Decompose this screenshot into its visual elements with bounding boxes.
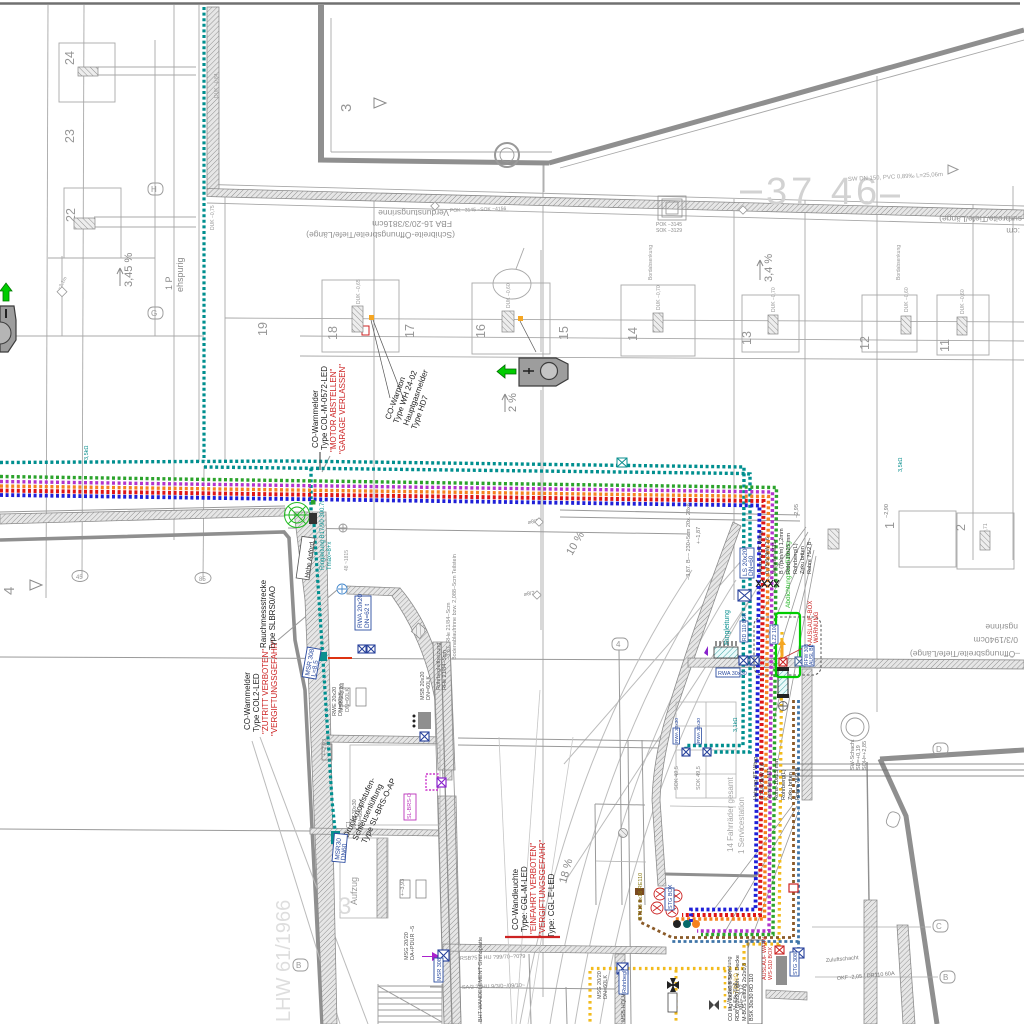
svg-text:Type COL-M-0572-LED: Type COL-M-0572-LED — [320, 366, 329, 450]
svg-text:Rohre 75/2 B: Rohre 75/2 B — [807, 541, 813, 574]
svg-text:DN=60LK: DN=60LK — [426, 676, 432, 700]
svg-text:Zirku brtten: Zirku brtten — [788, 772, 794, 800]
svg-text:BHT WANDELEMENT Grundplatte: BHT WANDELEMENT Grundplatte — [478, 937, 484, 1022]
svg-text:3,5kΩ: 3,5kΩ — [898, 457, 904, 472]
svg-text:"GARAGE VERLASSEN": "GARAGE VERLASSEN" — [338, 364, 347, 454]
svg-text:DN=60LK: DN=60LK — [603, 975, 609, 999]
svg-text:2: 2 — [954, 524, 968, 531]
svg-text:DUK −0,60: DUK −0,60 — [960, 289, 966, 314]
svg-text:DUK −0,60: DUK −0,60 — [904, 287, 910, 312]
svg-text:WARNUNG: WARNUNG — [814, 611, 820, 643]
svg-text:Rohrbwrg(L): Rohrbwrg(L) — [781, 769, 787, 800]
svg-text:+−3,93: +−3,93 — [400, 879, 406, 896]
svg-text:RWA 30x30: RWA 30x30 — [674, 718, 680, 743]
svg-text:H: H — [151, 185, 157, 194]
svg-text:3,45 %: 3,45 % — [123, 253, 135, 287]
svg-text:48 ~1815: 48 ~1815 — [344, 550, 350, 571]
svg-text::cm: :cm — [1006, 226, 1020, 236]
svg-text:B: B — [296, 961, 301, 970]
svg-text:Aufzug: Aufzug — [349, 877, 359, 905]
svg-text:RWA 30x30: RWA 30x30 — [718, 671, 747, 677]
svg-text:1: 1 — [883, 522, 897, 529]
svg-text:M-BUS Leitung 2x2x0,8: M-BUS Leitung 2x2x0,8 — [742, 963, 748, 1021]
svg-text:SOK 49,5: SOK 49,5 — [674, 766, 680, 790]
svg-text:"EINFAHRT VERBOTEN": "EINFAHRT VERBOTEN" — [529, 843, 538, 934]
svg-text:4: 4 — [1, 587, 18, 595]
svg-text:1 P: 1 P — [164, 276, 174, 290]
svg-text:SOK −3129: SOK −3129 — [656, 228, 682, 234]
svg-text:23: 23 — [63, 129, 77, 143]
svg-text:12: 12 — [858, 336, 872, 350]
svg-text:17: 17 — [403, 324, 417, 338]
svg-text:0,75/6/3kW 2,6: 0,75/6/3kW 2,6 — [765, 537, 771, 574]
svg-text:DN60: DN60 — [340, 843, 348, 861]
svg-text:SL-BRS-O: SL-BRS-O — [407, 792, 413, 819]
svg-text:C: C — [936, 922, 942, 931]
svg-text:SOK 49,5: SOK 49,5 — [696, 766, 702, 790]
svg-text:16: 16 — [474, 324, 488, 338]
svg-text:Bordabsenkung: Bordabsenkung — [648, 245, 654, 280]
svg-text:STG 308: STG 308 — [793, 953, 799, 975]
svg-text:RD8 (20x20) abh. v. Decke: RD8 (20x20) abh. v. Decke — [735, 955, 741, 1021]
svg-text:BT118 2x16 RE110: BT118 2x16 RE110 — [638, 873, 644, 920]
svg-text:Heizung BT Wtng: Heizung BT Wtng — [753, 757, 759, 800]
svg-text:BSK 30x30 RD 110: BSK 30x30 RD 110 — [749, 974, 755, 1021]
svg-text:+−2,93: +−2,93 — [340, 683, 346, 700]
svg-text:ehspurig: ehspurig — [175, 257, 185, 292]
svg-text:1 Servicestation: 1 Servicestation — [737, 797, 746, 854]
svg-text:RWA 20x20: RWA 20x20 — [357, 594, 364, 628]
svg-text:+−2,93: +−2,93 — [322, 739, 328, 756]
svg-text:−2,95: −2,95 — [794, 504, 800, 518]
svg-text:CO-Warnmelder: CO-Warnmelder — [311, 390, 320, 448]
svg-text:CO-Wandleuchte: CO-Wandleuchte — [511, 868, 520, 930]
svg-text:Type SLBRS0/AO: Type SLBRS0/AO — [268, 586, 277, 650]
svg-text:Rohs-10x2S mm: Rohs-10x2S mm — [786, 533, 792, 574]
svg-text:Rohre 75/2 B: Rohre 75/2 B — [795, 767, 801, 800]
svg-text:G: G — [151, 309, 157, 318]
svg-text:11: 11 — [938, 339, 952, 352]
svg-text:FBA 16-20/3/3816cm: FBA 16-20/3/3816cm — [372, 219, 452, 229]
svg-text:85: 85 — [199, 577, 206, 583]
svg-text:Rohs-10x2S mm: Rohs-10x2S mm — [774, 759, 780, 800]
svg-text:surbreite/Tiefe/Länge): surbreite/Tiefe/Länge) — [939, 214, 1022, 224]
svg-text:−2,90: −2,90 — [884, 504, 890, 518]
svg-text:Heizung BT Wtng: Heizung BT Wtng — [758, 531, 764, 574]
svg-text:Zirku brtten: Zirku brtten — [800, 546, 806, 574]
svg-text:Type: CGL-M-LED: Type: CGL-M-LED — [520, 866, 529, 932]
svg-text:RWA 30x30: RWA 30x30 — [696, 718, 702, 743]
svg-text:DUK −0,75: DUK −0,75 — [210, 205, 216, 230]
svg-text:LZ2 100: LZ2 100 — [772, 624, 778, 643]
svg-text:19: 19 — [256, 322, 270, 336]
svg-text:–Öffnungsbreite/Tiefe/Länge): –Öffnungsbreite/Tiefe/Länge) — [910, 649, 1020, 659]
svg-text:DN=60LK: DN=60LK — [358, 804, 364, 828]
svg-text:24: 24 — [63, 51, 77, 65]
svg-text:0/3/1940cm: 0/3/1940cm — [974, 635, 1018, 645]
svg-text:0,75/6/3kW 2,6: 0,75/6/3kW 2,6 — [760, 763, 766, 800]
svg-text:Verdunstungsrinne: Verdunstungsrinne — [378, 208, 449, 218]
svg-text:"VERGIFTUNGSGEFAHR": "VERGIFTUNGSGEFAHR" — [270, 639, 279, 736]
svg-text:"VERGIFTUNGSGEFAHR": "VERGIFTUNGSGEFAHR" — [538, 839, 547, 936]
svg-text:14: 14 — [626, 327, 640, 341]
svg-text:2 %: 2 % — [507, 393, 519, 412]
svg-text:+−1,87: +−1,87 — [696, 527, 702, 544]
svg-text:Rauchmessstrecke: Rauchmessstrecke — [259, 579, 268, 648]
svg-text:3,5kΩ: 3,5kΩ — [84, 445, 90, 460]
svg-text:CO Ltg. 2x2x0,8 St/Y: CO Ltg. 2x2x0,8 St/Y — [728, 969, 734, 1021]
svg-text:Verteiler M31: Verteiler M31 — [767, 768, 773, 800]
svg-text:LHW 61/1966: LHW 61/1966 — [273, 900, 295, 1022]
svg-text:ngsrinne: ngsrinne — [985, 622, 1018, 632]
svg-text:D: D — [936, 745, 942, 754]
svg-text:AUSL BL: AUSL BL — [809, 644, 815, 665]
svg-text:DUK −0,60: DUK −0,60 — [506, 283, 512, 308]
svg-text:Rohrbwrg(L): Rohrbwrg(L) — [793, 543, 799, 574]
svg-text:Verteiler M31+: Verteiler M31+ — [772, 538, 778, 574]
svg-text:Tmax=8+x: Tmax=8+x — [327, 542, 333, 570]
svg-text:B (7p/m/m) 1,2mm: B (7p/m/m) 1,2mm — [779, 528, 785, 574]
svg-text:Type COL2-LED: Type COL2-LED — [252, 673, 261, 732]
svg-text:"MOTOR ABSTELLEN": "MOTOR ABSTELLEN" — [329, 369, 338, 452]
svg-text:Rohrbegl.: Rohrbegl. — [622, 969, 628, 993]
svg-text:15: 15 — [557, 326, 571, 340]
svg-text:18: 18 — [326, 326, 340, 340]
svg-text:−3,87. B−− 230+5cm 20x. 28x8: −3,87. B−− 230+5cm 20x. 28x8 — [686, 503, 692, 580]
svg-text:4: 4 — [616, 640, 621, 649]
svg-text:13: 13 — [740, 331, 754, 345]
svg-text:3,1kΩ: 3,1kΩ — [733, 717, 739, 732]
svg-text:45: 45 — [76, 575, 83, 581]
svg-text:Ringleitung B17/90 300.7t: Ringleitung B17/90 300.7t — [320, 501, 326, 570]
svg-text:DUK −0,70: DUK −0,70 — [771, 287, 777, 312]
svg-text:STG BOX: STG BOX — [668, 884, 674, 909]
svg-text:Ringleitung: Ringleitung — [724, 610, 731, 645]
svg-text:DN=60: DN=60 — [748, 555, 755, 576]
svg-text:3,4 %: 3,4 % — [763, 254, 775, 282]
svg-text:CO-Warnmelder: CO-Warnmelder — [243, 672, 252, 730]
svg-text:RD 110 BSK: RD 110 BSK — [742, 612, 748, 641]
svg-text:DN=62 t: DN=62 t — [364, 604, 371, 628]
svg-text:WS-510 BOX: WS-510 BOX — [768, 947, 774, 980]
svg-text:MSR 308: MSR 308 — [437, 958, 443, 981]
svg-text:Bodenablaufrinne bzw. 2,088−5c: Bodenablaufrinne bzw. 2,088−5cm Teilstei… — [452, 554, 458, 660]
svg-text:SOH=+2,85: SOH=+2,85 — [862, 741, 868, 770]
svg-text:DA+PDUR −5: DA+PDUR −5 — [410, 926, 416, 960]
svg-text:B: B — [943, 973, 948, 982]
svg-text:Type: CGL-E-LED: Type: CGL-E-LED — [547, 873, 556, 938]
svg-text:14 Fahrräder gesamt: 14 Fahrräder gesamt — [726, 777, 735, 852]
svg-text:DUK −0,84: DUK −0,84 — [214, 73, 220, 98]
svg-text:(Schibreite-Öffnungsbreite/Tie: (Schibreite-Öffnungsbreite/Tiefe/Länge) — [306, 230, 455, 240]
svg-text:DUK −0,65: DUK −0,65 — [356, 279, 362, 304]
svg-text:3: 3 — [338, 104, 355, 112]
svg-text:Bordabsenkung: Bordabsenkung — [896, 245, 902, 280]
svg-text:DUK −0,70: DUK −0,70 — [656, 285, 662, 310]
svg-text:"ZUTRITT VERBOTEN": "ZUTRITT VERBOTEN" — [261, 649, 270, 734]
